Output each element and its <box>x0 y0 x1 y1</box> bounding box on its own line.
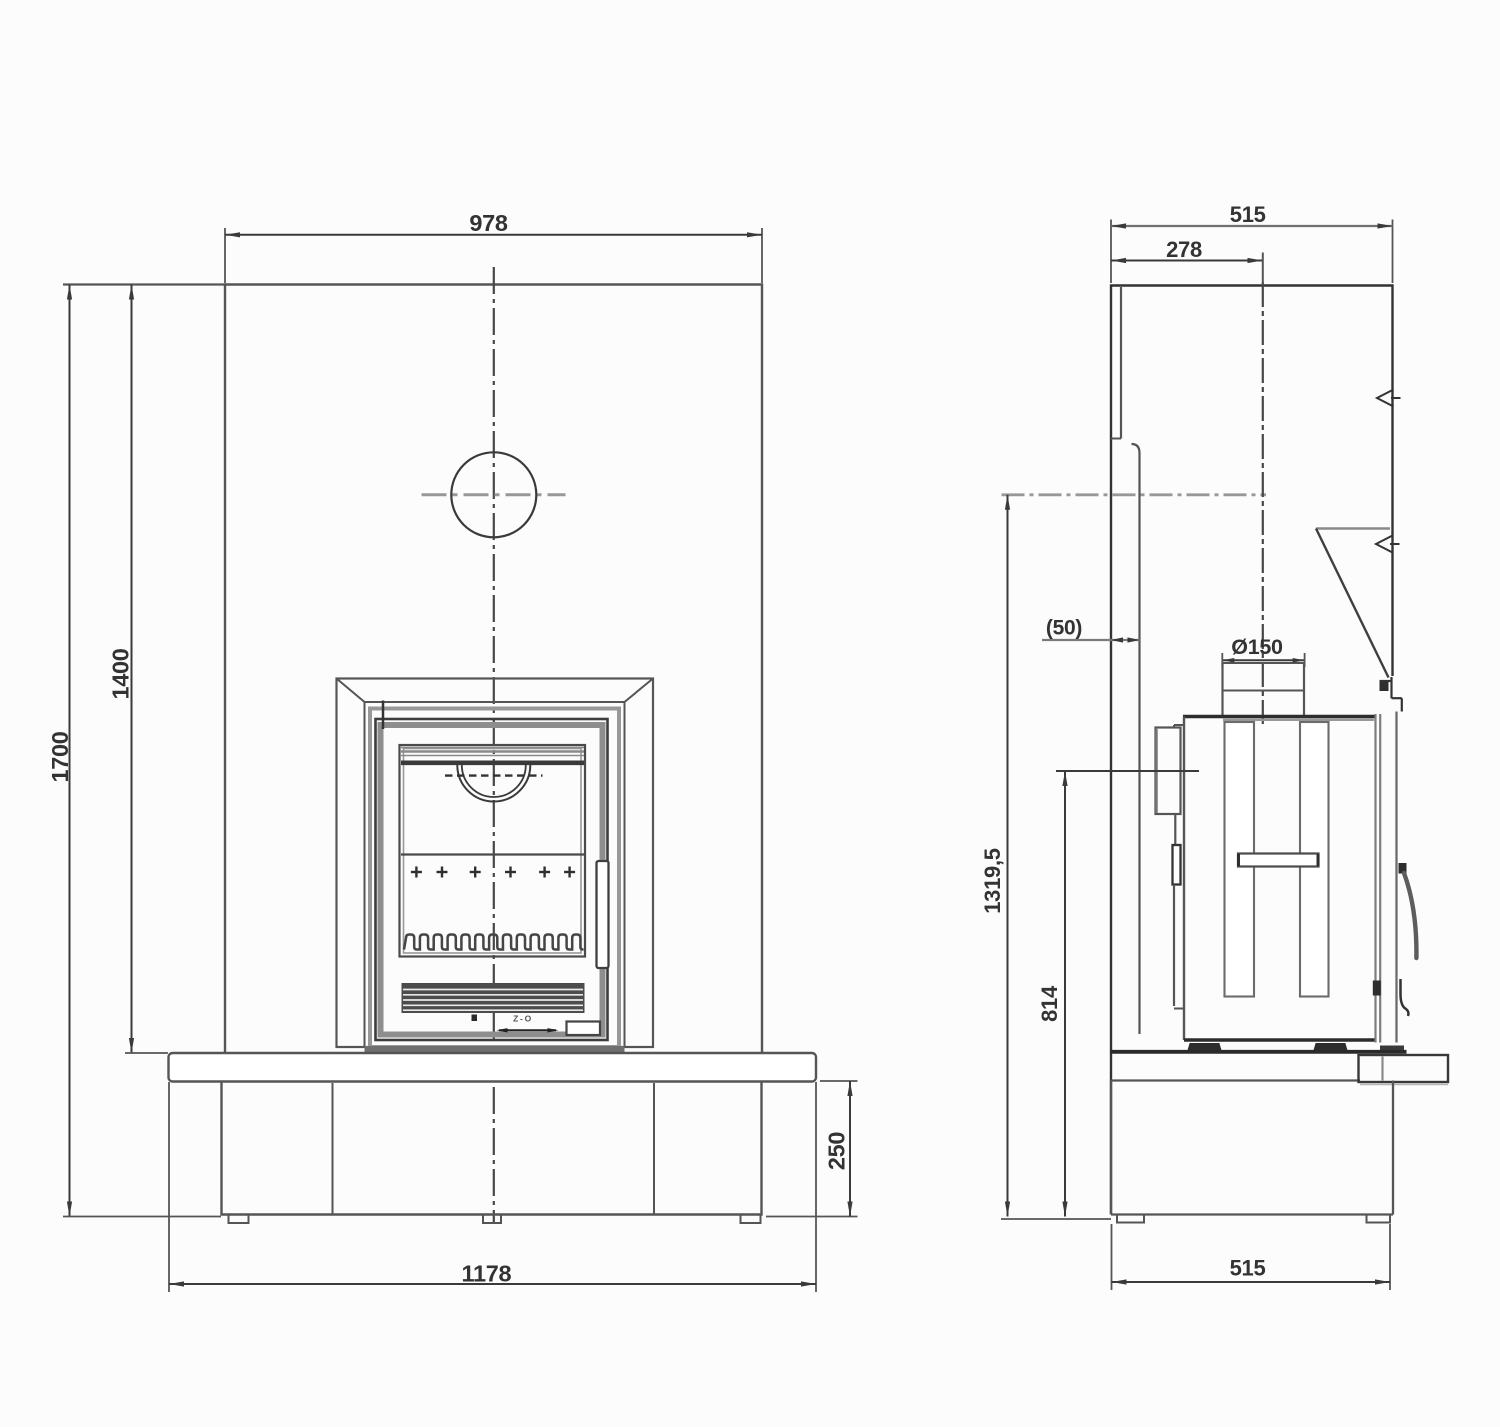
svg-text:250: 250 <box>824 1132 850 1171</box>
svg-text:Ø150: Ø150 <box>1231 635 1283 659</box>
svg-text:(50): (50) <box>1046 617 1082 640</box>
svg-text:1700: 1700 <box>47 731 73 782</box>
svg-text:Z - O: Z - O <box>513 1014 532 1024</box>
svg-text:978: 978 <box>469 210 508 236</box>
svg-text:278: 278 <box>1166 237 1202 262</box>
svg-text:1178: 1178 <box>462 1261 512 1287</box>
svg-text:1400: 1400 <box>108 648 134 699</box>
svg-text:1319,5: 1319,5 <box>980 848 1005 914</box>
svg-text:515: 515 <box>1230 1256 1266 1281</box>
svg-text:814: 814 <box>1037 985 1062 1022</box>
svg-text:515: 515 <box>1230 202 1266 227</box>
